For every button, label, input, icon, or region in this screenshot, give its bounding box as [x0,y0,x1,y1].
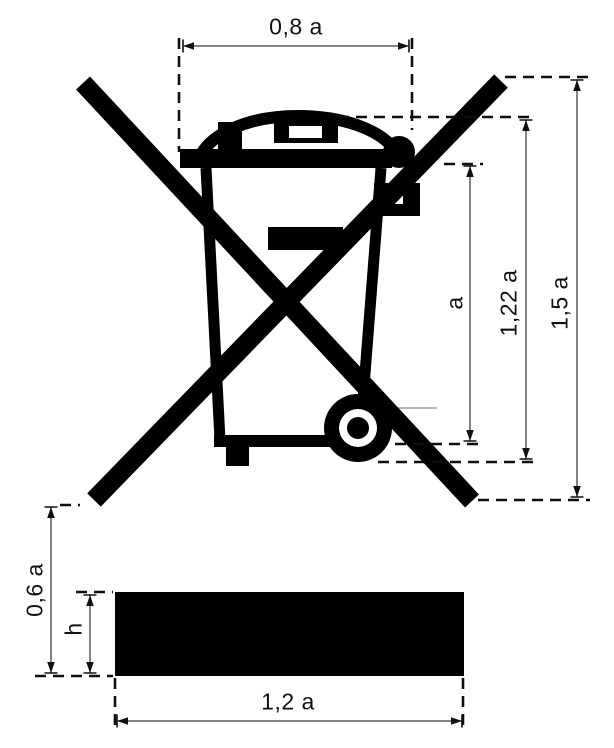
diagram-canvas [0,0,614,748]
label-lid-height: 1,22 a [498,270,521,337]
weee-dimension-drawing: 0,8 a a 1,22 a 1,5 a 0,6 a h 1,2 a [0,0,614,748]
bin-foot [226,447,249,466]
label-bar-gap: 0,6 a [24,563,47,617]
bin-lid-handle-hole [289,126,322,138]
label-container-height: a [444,296,467,309]
bin-rim-bar [180,149,392,168]
bin-wheel-hub [347,417,369,439]
label-top-width: 0,8 a [269,16,323,39]
black-bar [115,592,464,676]
label-bar-width: 1,2 a [261,691,315,714]
label-overall-height: 1,5 a [549,276,572,330]
label-bar-thickness: h [63,622,86,635]
